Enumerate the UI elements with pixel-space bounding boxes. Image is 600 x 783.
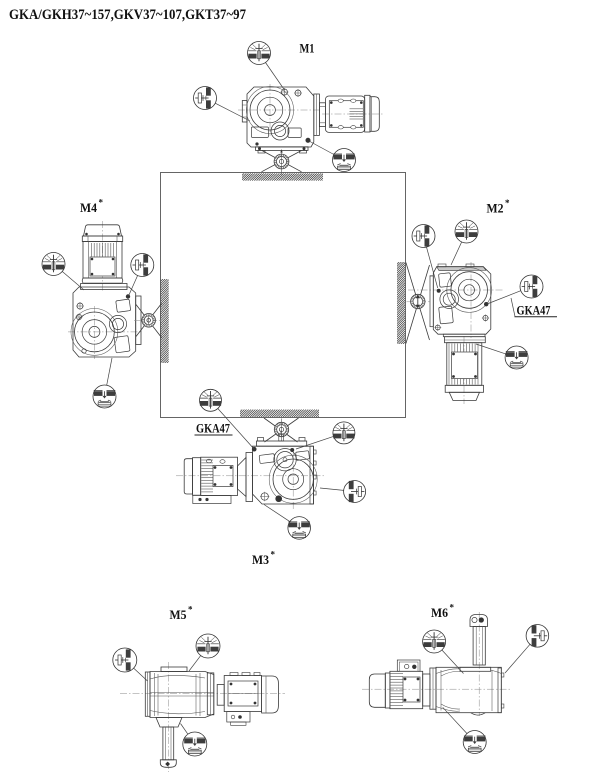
svg-text:M6: M6	[431, 605, 448, 620]
svg-text:M3: M3	[252, 552, 269, 567]
svg-text:GKA/GKH37~157,GKV37~107,GKT37~: GKA/GKH37~157,GKV37~107,GKT37~97	[9, 7, 246, 23]
svg-text:*: *	[505, 198, 510, 208]
svg-text:*: *	[450, 603, 455, 613]
svg-text:*: *	[99, 198, 104, 208]
svg-text:*: *	[271, 550, 276, 560]
svg-text:*: *	[188, 605, 193, 615]
svg-text:M1: M1	[300, 41, 315, 56]
svg-text:M2: M2	[487, 201, 504, 216]
svg-text:GKA47: GKA47	[196, 421, 230, 436]
svg-text:M4: M4	[80, 200, 97, 215]
svg-text:M5: M5	[170, 607, 187, 622]
svg-text:GKA47: GKA47	[517, 303, 551, 318]
